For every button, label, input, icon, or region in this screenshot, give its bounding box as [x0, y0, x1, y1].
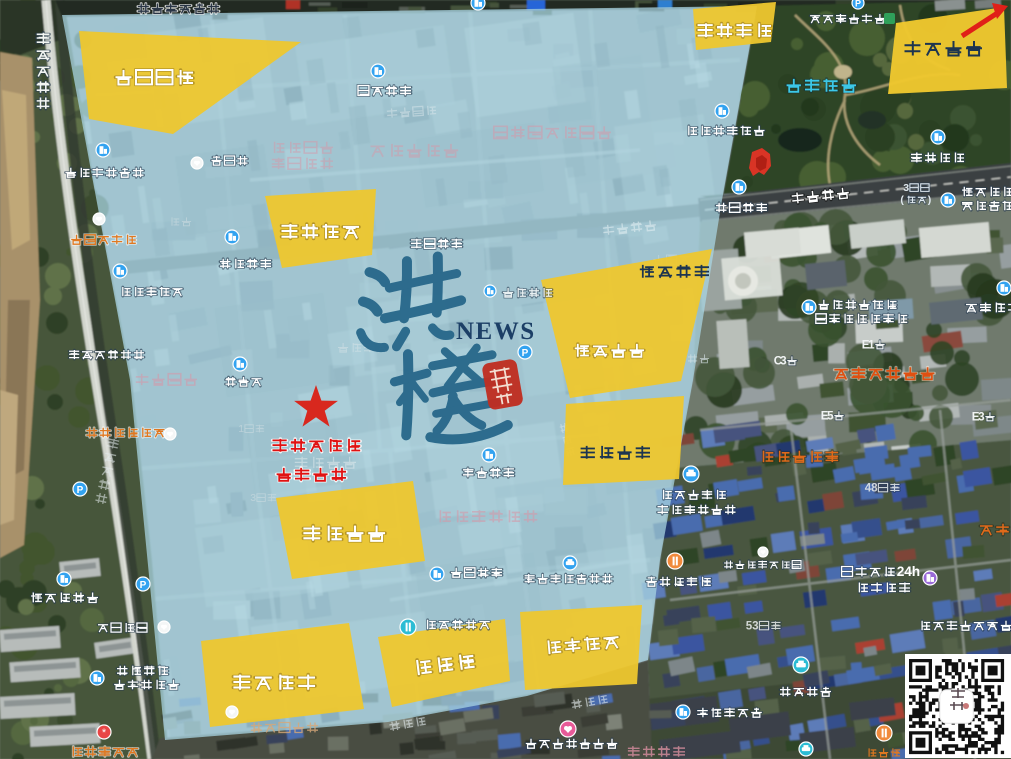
svg-text:1: 1 — [868, 339, 875, 352]
svg-text:(: ( — [900, 194, 904, 206]
svg-text:3: 3 — [903, 182, 909, 194]
svg-text:*: * — [102, 727, 107, 739]
svg-text:h: h — [912, 564, 920, 579]
svg-text:1: 1 — [238, 423, 244, 435]
svg-text:3: 3 — [250, 492, 256, 504]
svg-text:8: 8 — [871, 482, 878, 495]
svg-text:3: 3 — [780, 355, 787, 368]
svg-text:P: P — [77, 485, 84, 496]
svg-text:3: 3 — [752, 620, 759, 633]
svg-text:NEWS: NEWS — [456, 318, 536, 345]
svg-text:): ) — [928, 194, 932, 206]
svg-text:5: 5 — [827, 410, 834, 423]
svg-text:3: 3 — [978, 411, 985, 424]
svg-text:P: P — [140, 580, 147, 591]
svg-text:P: P — [855, 0, 861, 8]
svg-text:P: P — [522, 348, 529, 359]
